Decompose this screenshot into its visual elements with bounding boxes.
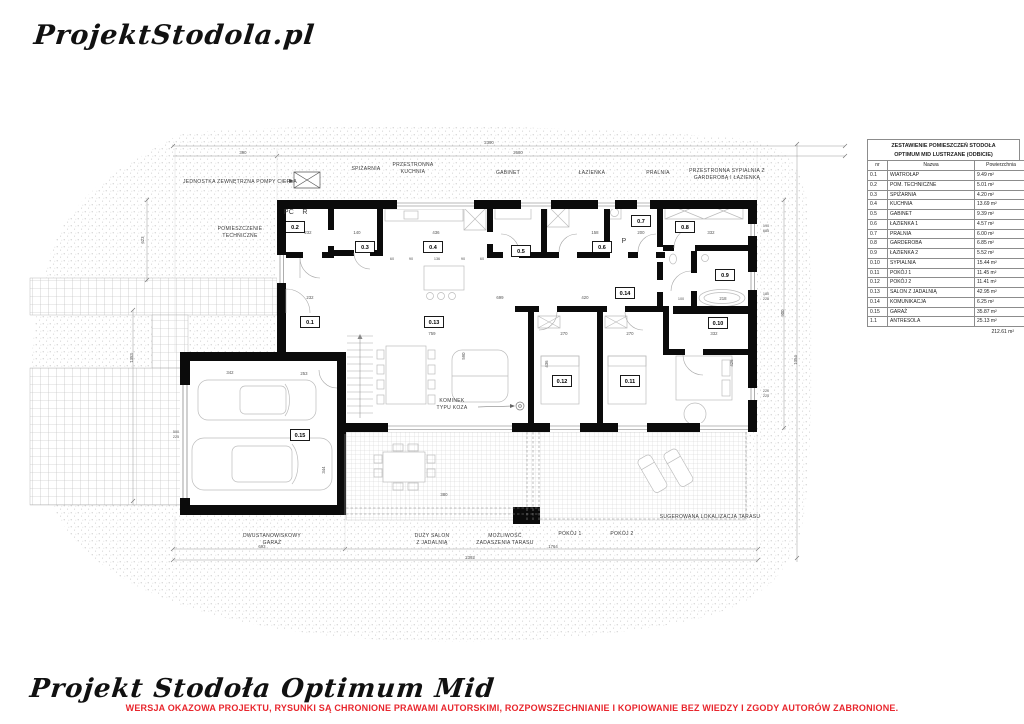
dimension-label: 759	[428, 331, 436, 336]
room-tag-0.13: 0.13	[425, 317, 444, 328]
dimension-label: 270	[560, 331, 568, 336]
legend-cell-nr: 0.6	[868, 219, 888, 229]
plan-label: DWUSTANOWISKOWY	[243, 533, 301, 539]
legend-cell-area: 11.41 m²	[975, 278, 1024, 288]
legend-cell-area: 11.45 m²	[975, 268, 1024, 278]
plan-label: POKÓJ 1	[558, 530, 581, 537]
plan-label: TYPU KOZA	[436, 405, 467, 411]
room-tag-label: 0.4	[429, 245, 438, 251]
legend-row: 0.4KUCHNIA13.69 m²	[868, 200, 1024, 210]
dimension-label: 232	[306, 295, 314, 300]
warning-text: WERSJA OKAZOWA PROJEKTU, RYSUNKI SĄ CHRO…	[0, 703, 1024, 713]
legend-cell-name: ŁAZIENKA 2	[888, 249, 975, 259]
legend-row: 0.13SALON Z JADALNIĄ42.95 m²	[868, 288, 1024, 298]
legend-cell-nr: 0.9	[868, 249, 888, 259]
legend-table: ZESTAWIENIE POMIESZCZEŃ STODOŁA OPTIMUM …	[867, 139, 1020, 335]
legend-cell-name: KUCHNIA	[888, 200, 975, 210]
legend-cell-nr: 0.13	[868, 288, 888, 298]
dimension-label: 225	[173, 435, 179, 439]
floor-plan: 2390390268069317642393623135390013541906…	[0, 0, 1024, 724]
legend-row: 0.15GARAŻ35.87 m²	[868, 307, 1024, 317]
room-tag-label: 0.6	[598, 245, 606, 251]
legend-cell-area: 9.49 m²	[975, 171, 1024, 181]
dimension-label: 225	[763, 394, 769, 398]
legend-cell-area: 15.44 m²	[975, 258, 1024, 268]
plan-label: Z JADALNIĄ	[416, 540, 448, 546]
legend-cell-area: 4.57 m²	[975, 219, 1024, 229]
dimension-label: 500	[173, 430, 179, 434]
dimension-label: 699	[496, 295, 504, 300]
dimension-label: 1764	[548, 544, 558, 549]
col-header-name: Nazwa	[888, 161, 975, 171]
dimension-label: 225	[763, 297, 769, 301]
legend-cell-name: GABINET	[888, 210, 975, 220]
legend-title-line2: OPTIMUM MID LUSTRZANE (ODBICIE)	[868, 151, 1019, 160]
plan-label: PRALNIA	[646, 170, 670, 176]
dimension-label: 623	[140, 236, 145, 244]
room-tag-label: 0.3	[361, 245, 369, 251]
room-tag-0.2: 0.2	[286, 222, 305, 233]
legend-cell-name: SALON Z JADALNIĄ	[888, 288, 975, 298]
plan-label: ŁAZIENKA	[579, 170, 606, 176]
legend-rows: 0.1WIATROŁAP9.49 m²0.2POM. TECHNICZNE5.0…	[868, 171, 1024, 327]
legend-cell-name: ANTRESOLA	[888, 317, 975, 327]
room-tag-0.12: 0.12	[553, 376, 572, 387]
site-logo: ProjektStodola.pl	[32, 20, 316, 51]
dimension-label: 380	[440, 492, 448, 497]
legend-title: ZESTAWIENIE POMIESZCZEŃ STODOŁA OPTIMUM …	[867, 139, 1020, 160]
room-tag-label: 0.8	[681, 225, 689, 231]
dimension-label: 344	[321, 466, 326, 474]
area-total: 212.61 m²	[867, 327, 1020, 335]
legend-cell-name: GARAŻ	[888, 307, 975, 317]
legend-cell-name: POM. TECHNICZNE	[888, 180, 975, 190]
col-header-nr: nr	[868, 161, 888, 171]
room-tag-label: 0.14	[620, 291, 632, 297]
room-tag-0.9: 0.9	[716, 270, 735, 281]
dimension-label: 180	[763, 292, 769, 296]
legend-cell-nr: 0.2	[868, 180, 888, 190]
legend-cell-name: GARDEROBA	[888, 239, 975, 249]
legend-cell-area: 6.25 m²	[975, 297, 1024, 307]
room-tag-0.6: 0.6	[593, 242, 612, 253]
room-tag-label: 0.11	[625, 379, 635, 385]
legend-cell-nr: 0.7	[868, 229, 888, 239]
legend-title-line1: ZESTAWIENIE POMIESZCZEŃ STODOŁA	[868, 142, 1019, 151]
room-tag-0.1: 0.1	[301, 317, 320, 328]
dimension-label: 253	[300, 371, 308, 376]
room-tag-0.15: 0.15	[291, 430, 310, 441]
legend-cell-area: 5.01 m²	[975, 180, 1024, 190]
plan-label: P	[622, 238, 627, 245]
legend-cell-name: ŁAZIENKA 1	[888, 219, 975, 229]
room-tag-label: 0.7	[637, 219, 645, 225]
dimension-label: 342	[226, 370, 234, 375]
plan-label: KOMINEK	[439, 398, 465, 404]
dimension-label: 2390	[484, 140, 494, 145]
plan-label: MOŻLIWOŚĆ	[488, 531, 522, 539]
legend-row: 0.2POM. TECHNICZNE5.01 m²	[868, 180, 1024, 190]
plan-label: POKÓJ 2	[610, 530, 633, 537]
dimension-label: 332	[707, 230, 715, 235]
plan-label: TECHNICZNE	[222, 233, 258, 239]
legend-cell-area: 4.20 m²	[975, 190, 1024, 200]
dimension-label: 390	[239, 150, 247, 155]
legend-row: 0.12POKÓJ 211.41 m²	[868, 278, 1024, 288]
plan-label: PRZESTRONNA SYPIALNIA Z	[689, 168, 765, 174]
dimension-label: 590	[461, 352, 466, 360]
room-tag-label: 0.9	[721, 273, 729, 279]
dimension-label: 685	[763, 229, 769, 233]
plan-label: GABINET	[496, 170, 520, 176]
legend-cell-nr: 0.15	[868, 307, 888, 317]
dimension-label: 220	[763, 389, 769, 393]
room-tag-0.8: 0.8	[676, 222, 695, 233]
plan-label: ZADASZENIA TARASU	[476, 540, 534, 546]
legend-cell-nr: 1.1	[868, 317, 888, 327]
room-tag-label: 0.5	[517, 249, 525, 255]
plan-label: KUCHNIA	[401, 169, 426, 175]
dimension-label: 100	[678, 297, 684, 301]
room-tag-label: 0.10	[713, 321, 724, 327]
plan-label: SPIŻARNIA	[351, 165, 380, 172]
legend-row: 1.1ANTRESOLA25.13 m²	[868, 317, 1024, 327]
legend-cell-name: WIATROŁAP	[888, 171, 975, 181]
plan-label: JEDNOSTKA ZEWNĘTRZNA POMPY CIEPŁA	[183, 179, 297, 185]
legend-cell-nr: 0.5	[868, 210, 888, 220]
room-tag-0.11: 0.11	[621, 376, 640, 387]
dimension-label: 2680	[513, 150, 523, 155]
legend-cell-name: SYPIALNIA	[888, 258, 975, 268]
col-header-area: Powierzchnia	[975, 161, 1024, 171]
room-tag-0.4: 0.4	[424, 242, 443, 253]
legend-cell-area: 13.69 m²	[975, 200, 1024, 210]
dimension-label: 426	[729, 359, 734, 367]
legend-cell-nr: 0.11	[868, 268, 888, 278]
legend-cell-name: KOMUNIKACJA	[888, 297, 975, 307]
dimension-label: 60	[390, 257, 394, 261]
legend-cell-nr: 0.1	[868, 171, 888, 181]
legend-row: 0.3SPIŻARNIA4.20 m²	[868, 190, 1024, 200]
legend-row: 0.7PRALNIA6.00 m²	[868, 229, 1024, 239]
dimension-label: 270	[626, 331, 634, 336]
dimension-label: 332	[710, 331, 718, 336]
room-tag-label: 0.2	[291, 225, 299, 231]
room-schedule: nr Nazwa Powierzchnia 0.1WIATROŁAP9.49 m…	[867, 160, 1024, 327]
plan-label: PC	[284, 209, 294, 216]
room-tag-0.10: 0.10	[709, 318, 728, 329]
legend-cell-name: SPIŻARNIA	[888, 190, 975, 200]
legend-cell-nr: 0.12	[868, 278, 888, 288]
legend-cell-area: 9.39 m²	[975, 210, 1024, 220]
dimension-label: 2393	[465, 555, 475, 560]
legend-row: 0.10SYPIALNIA15.44 m²	[868, 258, 1024, 268]
legend-cell-nr: 0.10	[868, 258, 888, 268]
legend-row: 0.1WIATROŁAP9.49 m²	[868, 171, 1024, 181]
dimension-label: 900	[780, 309, 785, 317]
plan-label: GARDEROBĄ I ŁAZIENKĄ	[694, 175, 761, 181]
legend-cell-area: 5.52 m²	[975, 249, 1024, 259]
legend-cell-name: PRALNIA	[888, 229, 975, 239]
legend-cell-area: 6.85 m²	[975, 239, 1024, 249]
legend-row: 0.11POKÓJ 111.45 m²	[868, 268, 1024, 278]
dimension-label: 1354	[793, 355, 798, 365]
plan-label: GARAŻ	[263, 539, 282, 546]
legend-cell-area: 6.00 m²	[975, 229, 1024, 239]
legend-row: 0.5GABINET9.39 m²	[868, 210, 1024, 220]
dimension-label: 158	[591, 230, 599, 235]
plan-label: PRZESTRONNA	[392, 162, 433, 168]
dimension-label: 218	[719, 296, 727, 301]
room-tag-0.3: 0.3	[356, 242, 375, 253]
plan-label: POMIESZCZENIE	[218, 226, 263, 232]
legend-cell-area: 25.13 m²	[975, 317, 1024, 327]
room-tag-label: 0.15	[295, 433, 306, 439]
legend-row: 0.6ŁAZIENKA 14.57 m²	[868, 219, 1024, 229]
legend-cell-nr: 0.14	[868, 297, 888, 307]
dimension-label: 200	[637, 230, 645, 235]
room-tag-label: 0.13	[429, 320, 440, 326]
plan-label: R	[302, 209, 307, 216]
legend-row: 0.14KOMUNIKACJA6.25 m²	[868, 297, 1024, 307]
room-tag-0.5: 0.5	[512, 246, 531, 257]
plan-label: DUŻY SALON	[415, 532, 450, 539]
legend-cell-area: 42.95 m²	[975, 288, 1024, 298]
dimension-label: 436	[432, 230, 440, 235]
plan-label: SUGEROWANA LOKALIZACJA TARASU	[660, 514, 761, 520]
dimension-label: 436	[544, 360, 549, 368]
legend-cell-nr: 0.8	[868, 239, 888, 249]
dimension-label: 1353	[129, 353, 134, 363]
dimension-label: 90	[461, 257, 465, 261]
dimension-label: 190	[763, 224, 769, 228]
legend-row: 0.8GARDEROBA6.85 m²	[868, 239, 1024, 249]
legend-cell-name: POKÓJ 1	[888, 268, 975, 278]
legend-cell-nr: 0.3	[868, 190, 888, 200]
room-tag-label: 0.12	[557, 379, 568, 385]
dimension-label: 136	[434, 257, 440, 261]
legend-row: 0.9ŁAZIENKA 25.52 m²	[868, 249, 1024, 259]
dimension-label: 140	[353, 230, 361, 235]
dimension-label: 420	[581, 295, 589, 300]
project-title: Projekt Stodoła Optimum Mid	[28, 674, 496, 704]
legend-cell-nr: 0.4	[868, 200, 888, 210]
legend-cell-name: POKÓJ 2	[888, 278, 975, 288]
room-tag-label: 0.1	[306, 320, 314, 326]
dimension-label: 60	[480, 257, 484, 261]
legend-cell-area: 35.87 m²	[975, 307, 1024, 317]
room-tag-0.14: 0.14	[616, 288, 635, 299]
room-tag-0.7: 0.7	[632, 216, 651, 227]
dimension-label: 90	[409, 257, 413, 261]
dimension-label: 232	[304, 230, 312, 235]
